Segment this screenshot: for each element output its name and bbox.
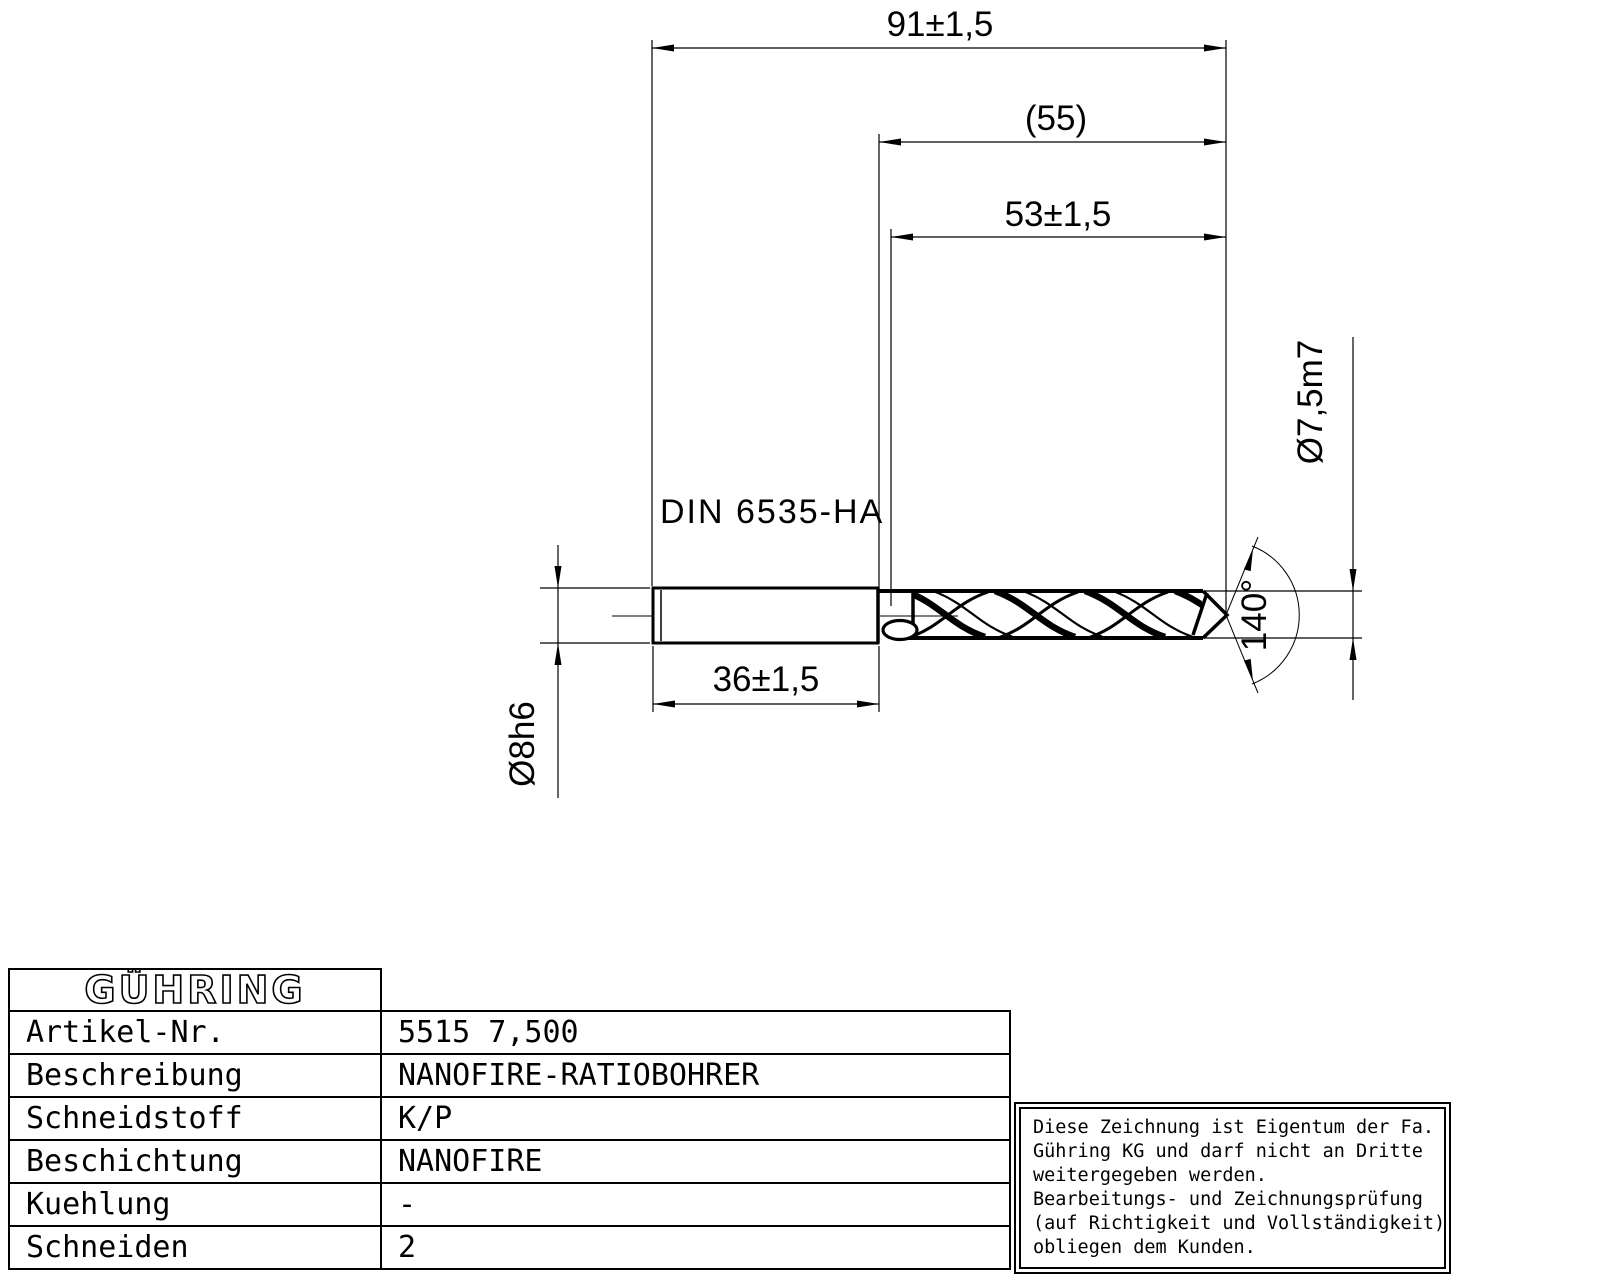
dim-flute-ref-label: (55) <box>1025 99 1087 138</box>
coolant-hole <box>883 621 917 640</box>
drill-outline <box>653 588 1255 643</box>
note-line: obliegen dem Kunden. <box>1033 1236 1444 1260</box>
row-value: - <box>382 1184 1009 1225</box>
table-row: Beschreibung NANOFIRE-RATIOBOHRER <box>10 1055 1009 1098</box>
dim-drill-diameter-label: Ø7,5m7 <box>1291 340 1330 465</box>
table-row: Schneidstoff K/P <box>10 1098 1009 1141</box>
dimension-flute-ref: (55) <box>879 99 1226 146</box>
ownership-note-box: Diese Zeichnung ist Eigentum der Fa. Güh… <box>1014 1102 1451 1274</box>
logo-cell: GÜHRING <box>8 968 382 1012</box>
dimension-total-length: 91±1,5 <box>652 5 1226 52</box>
technical-drawing: 91±1,5 (55) 53±1,5 36±1,5 Ø8h6 Ø7,5m7 <box>0 0 1600 960</box>
spec-table: Artikel-Nr. 5515 7,500 Beschreibung NANO… <box>8 1010 1011 1270</box>
shank-standard-label: DIN 6535-HA <box>660 493 884 531</box>
dimension-point-angle: 140° <box>1226 537 1299 693</box>
dimension-shank-length: 36±1,5 <box>653 660 879 708</box>
note-line: weitergegeben werden. <box>1033 1164 1444 1188</box>
row-value: K/P <box>382 1098 1009 1139</box>
dimension-drill-diameter: Ø7,5m7 <box>1291 337 1357 700</box>
table-row: Schneiden 2 <box>10 1227 1009 1268</box>
dim-flute-length-label: 53±1,5 <box>1005 195 1112 234</box>
row-label: Beschichtung <box>10 1141 382 1182</box>
row-value: 2 <box>382 1227 1009 1268</box>
row-label: Schneiden <box>10 1227 382 1268</box>
dim-total-length-label: 91±1,5 <box>887 5 994 44</box>
guehring-logo: GÜHRING <box>84 970 305 1010</box>
row-label: Artikel-Nr. <box>10 1012 382 1053</box>
drawing-sheet: { "drawing": { "dim_total_length": "91±1… <box>0 0 1600 1280</box>
dimension-flute-length: 53±1,5 <box>891 195 1226 241</box>
note-line: Gühring KG und darf nicht an Dritte <box>1033 1140 1444 1164</box>
table-row: Kuehlung - <box>10 1184 1009 1227</box>
row-label: Schneidstoff <box>10 1098 382 1139</box>
note-line: (auf Richtigkeit und Vollständigkeit) <box>1033 1212 1444 1236</box>
table-row: Artikel-Nr. 5515 7,500 <box>10 1012 1009 1055</box>
row-value: NANOFIRE-RATIOBOHRER <box>382 1055 1009 1096</box>
ownership-note-inner: Diese Zeichnung ist Eigentum der Fa. Güh… <box>1019 1107 1446 1269</box>
table-row: Beschichtung NANOFIRE <box>10 1141 1009 1184</box>
dim-shank-diameter-label: Ø8h6 <box>503 701 542 787</box>
row-value: 5515 7,500 <box>382 1012 1009 1053</box>
flute-spirals <box>905 591 1255 638</box>
row-label: Beschreibung <box>10 1055 382 1096</box>
dim-shank-length-label: 36±1,5 <box>713 660 820 699</box>
note-line: Bearbeitungs- und Zeichnungsprüfung <box>1033 1188 1444 1212</box>
dim-point-angle-label: 140° <box>1235 579 1274 651</box>
row-value: NANOFIRE <box>382 1141 1009 1182</box>
dimension-shank-diameter: Ø8h6 <box>503 545 562 798</box>
note-line: Diese Zeichnung ist Eigentum der Fa. <box>1033 1116 1444 1140</box>
row-label: Kuehlung <box>10 1184 382 1225</box>
